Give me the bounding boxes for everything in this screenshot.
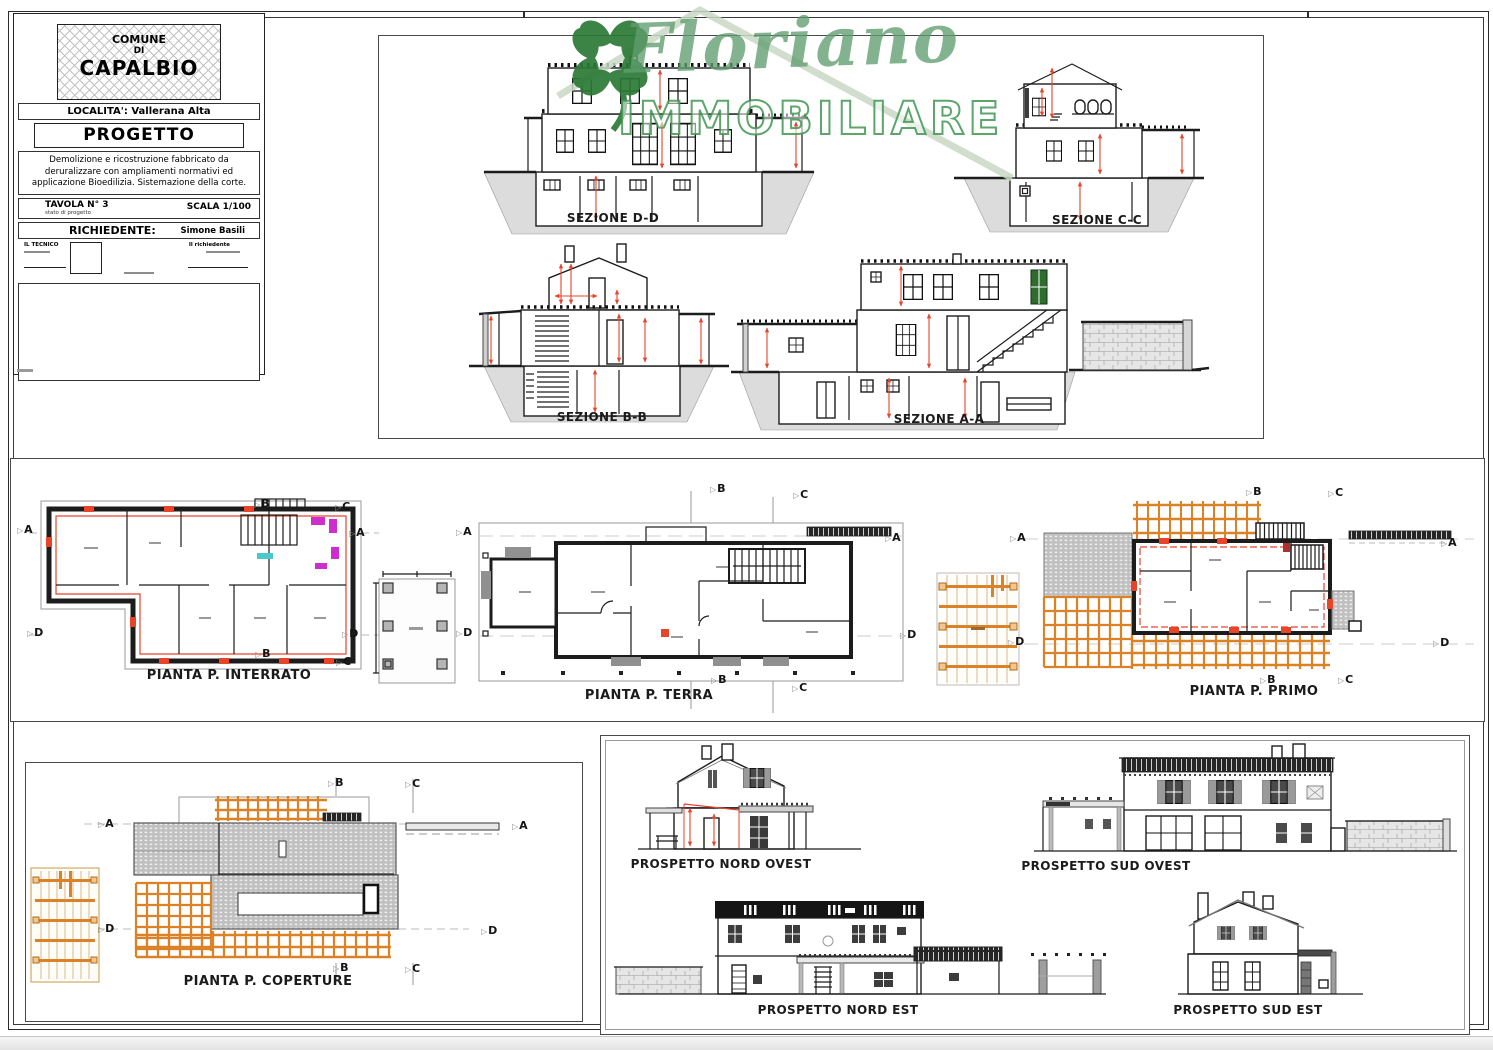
section-marker-b: ▷B (710, 482, 726, 495)
section-marker-a: ▷A (885, 531, 901, 544)
sezione-cc-label: SEZIONE C-C (1052, 214, 1142, 227)
localita-row: LOCALITA': Vallerana Alta (18, 103, 260, 120)
richiedente-label: RICHIEDENTE: (69, 224, 156, 237)
prospetto-nord-est-label: PROSPETTO NORD EST (758, 1004, 919, 1017)
prospetto-sud-est-label: PROSPETTO SUD EST (1173, 1004, 1322, 1017)
tavola-row: TAVOLA N° 3 stato di progetto SCALA 1/10… (18, 198, 260, 219)
comune-line1: COMUNE (58, 33, 220, 46)
section-marker-d: ▷D (1008, 635, 1024, 648)
section-marker-a: ▷A (512, 819, 528, 832)
section-marker-c: ▷C (1338, 673, 1353, 686)
section-marker-b: ▷B (711, 673, 727, 686)
illegible-text (206, 251, 240, 253)
section-marker-d: ▷D (1433, 636, 1449, 649)
signature-line (24, 267, 66, 268)
sezione-dd-label: SEZIONE D-D (567, 212, 659, 225)
elevations-panel: PROSPETTO NORD OVEST (600, 735, 1470, 1035)
prospetto-nord-ovest-label: PROSPETTO NORD OVEST (631, 858, 812, 871)
pianta-primo-label: PIANTA P. PRIMO (1190, 685, 1319, 699)
section-marker-c: ▷C (335, 500, 350, 513)
sezione-bb-drawing (469, 244, 729, 434)
pianta-terra-label: PIANTA P. TERRA (585, 689, 713, 703)
prospetto-nord-est-drawing (611, 881, 1111, 1009)
comune-line3: CAPALBIO (58, 56, 220, 80)
richiedente-name: Simone Basili (180, 226, 245, 236)
tavola-number: TAVOLA N° 3 (45, 200, 109, 210)
section-marker-a: ▷A (1441, 536, 1457, 549)
section-marker-b: ▷B (1260, 673, 1276, 686)
pianta-coperture-label: PIANTA P. COPERTURE (184, 975, 353, 989)
section-marker-d: ▷D (98, 922, 114, 935)
comune-box: COMUNE DI CAPALBIO (57, 24, 221, 100)
section-marker-b: ▷B (254, 497, 270, 510)
tavola-subtitle: stato di progetto (45, 210, 109, 216)
stamp-box (70, 242, 102, 274)
firma-label: Il richiedente (189, 242, 230, 248)
section-marker-c: ▷C (336, 655, 351, 668)
illegible-text (17, 369, 33, 372)
pianta-interrato-label: PIANTA P. INTERRATO (147, 669, 311, 683)
scala-value: SCALA 1/100 (187, 200, 251, 218)
section-marker-b: ▷B (328, 776, 344, 789)
illegible-text (124, 272, 154, 274)
prospetto-sud-ovest-label: PROSPETTO SUD OVEST (1021, 860, 1190, 873)
page-background: COMUNE DI CAPALBIO LOCALITA': Vallerana … (0, 0, 1493, 1050)
section-marker-a: ▷A (456, 525, 472, 538)
section-marker-a: ▷A (1010, 531, 1026, 544)
border-tick (1307, 11, 1309, 18)
pianta-primo-drawing (1019, 471, 1481, 714)
progetto-title: PROGETTO (34, 123, 244, 148)
project-description: Demolizione e ricostruzione fabbricato d… (18, 151, 260, 195)
page-bottom-strip (0, 1036, 1493, 1050)
illegible-text (24, 251, 50, 253)
border-tick (523, 11, 525, 18)
section-marker-b: ▷B (255, 647, 271, 660)
section-marker-a: ▷A (17, 523, 33, 536)
prospetto-sud-est-drawing (1173, 884, 1433, 1009)
richiedente-row: RICHIEDENTE: Simone Basili (18, 222, 260, 239)
pianta-terra-drawing (461, 471, 931, 714)
section-marker-d: ▷D (27, 626, 43, 639)
sections-panel: SEZIONE D-D (378, 35, 1264, 439)
section-marker-c: ▷C (405, 962, 420, 975)
section-marker-d: ▷D (900, 628, 916, 641)
gazebo-beams-drawing (931, 565, 1026, 691)
prospetto-nord-ovest-drawing (626, 744, 876, 864)
roof-plan-panel: ▷B ▷C ▷A ▷A ▷D ▷D ▷B ▷C PIANTA P. COPERT… (25, 762, 583, 1022)
plans-panel: PIANTA P. INTERRATO (10, 458, 1485, 722)
signature-row: IL TECNICO Il richiedente (18, 240, 260, 280)
section-marker-a: ▷A (98, 817, 114, 830)
section-marker-d: ▷D (456, 626, 472, 639)
section-marker-b: ▷B (1246, 485, 1262, 498)
section-marker-c: ▷C (793, 488, 808, 501)
comune-line2: DI (58, 46, 220, 56)
title-block: COMUNE DI CAPALBIO LOCALITA': Vallerana … (13, 13, 265, 375)
tecnico-label: IL TECNICO (24, 242, 58, 248)
sezione-aa-drawing (731, 248, 1211, 438)
section-marker-c: ▷C (792, 681, 807, 694)
section-marker-a: ▷A (349, 526, 365, 539)
gazebo-plan-drawing (373, 569, 461, 689)
prospetto-sud-ovest-drawing (1029, 744, 1464, 866)
section-marker-d: ▷D (342, 627, 358, 640)
section-marker-c: ▷C (1328, 486, 1343, 499)
section-marker-c: ▷C (405, 777, 420, 790)
sezione-aa-label: SEZIONE A-A (894, 413, 985, 426)
signature-line (188, 267, 248, 268)
drawing-sheet: COMUNE DI CAPALBIO LOCALITA': Vallerana … (0, 0, 1493, 1036)
notes-box (18, 283, 260, 381)
sezione-bb-label: SEZIONE B-B (557, 411, 647, 424)
section-marker-d: ▷D (481, 924, 497, 937)
section-marker-b: ▷B (333, 961, 349, 974)
